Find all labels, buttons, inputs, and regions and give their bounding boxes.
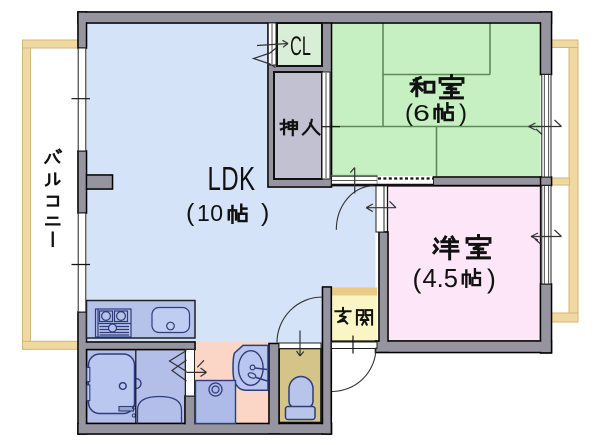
svg-text:): ) [459, 100, 467, 127]
svg-text:4.5: 4.5 [423, 265, 458, 293]
svg-text:LDK: LDK [208, 161, 256, 198]
svg-text:10: 10 [197, 200, 224, 226]
svg-text:(: ( [413, 264, 422, 294]
svg-text:): ) [261, 199, 269, 227]
svg-text:(: ( [186, 199, 195, 227]
svg-text:CL: CL [290, 31, 311, 61]
svg-text:6: 6 [413, 100, 430, 126]
svg-text:): ) [487, 264, 496, 294]
svg-text:(: ( [405, 100, 413, 127]
